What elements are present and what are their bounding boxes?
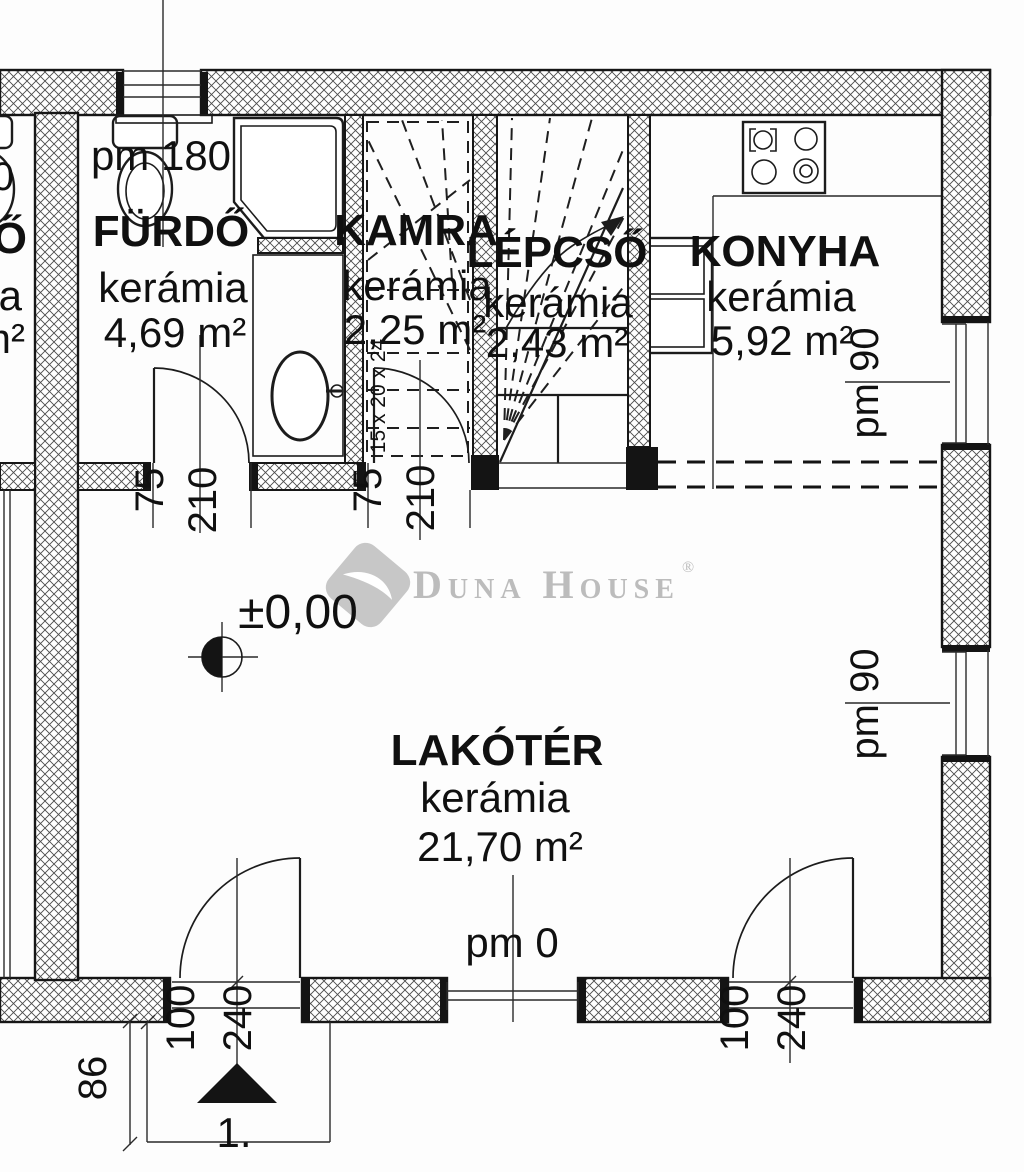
room-label-lakoter-area: 21,70 m²	[417, 823, 583, 870]
dim-kamra-door-height: 210	[399, 465, 443, 532]
room-label-lakoter-name: LAKÓTÉR	[391, 725, 604, 775]
adjacent-room-fragment-top: 0	[0, 155, 14, 199]
stair-formula-label: 15 x 20 x 24	[367, 338, 390, 453]
window-parapet-label-pm180: pm 180	[91, 132, 231, 179]
kitchen-window	[942, 322, 988, 445]
washbasin-icon	[253, 255, 343, 456]
dim-entry-left-width: 100	[159, 985, 203, 1052]
duna-house-logo: Duna House ®	[320, 537, 694, 633]
room-label-lepcso-name: LÉPCSŐ	[467, 227, 648, 277]
gallery-edge-dashed	[658, 462, 942, 487]
duna-house-logo-text: Duna House	[413, 562, 680, 607]
stove-icon	[743, 122, 825, 193]
window-parapet-label-pm0: pm 0	[465, 919, 558, 966]
entrance-marker-icon	[197, 1063, 277, 1103]
window-parapet-label-pm90-lower: pm 90	[843, 648, 887, 759]
dim-kamra-door-width: 75	[346, 468, 390, 513]
room-label-konyha-material: kerámia	[706, 273, 856, 320]
bathroom-door	[154, 368, 249, 463]
room-label-furdo-area: 4,69 m²	[104, 309, 246, 356]
room-label-konyha-name: KONYHA	[690, 227, 881, 276]
bathroom-window	[116, 71, 212, 123]
floor-plan-svg: Duna House ® pm 180 FÜRDŐ kerámia 4,69 m…	[0, 0, 1024, 1172]
room-label-lakoter-material: kerámia	[420, 774, 570, 821]
stairs-floor-lines	[497, 463, 632, 488]
floor-plan: Duna House ® pm 180 FÜRDŐ kerámia 4,69 m…	[0, 0, 1024, 1172]
dim-entry-left-height: 240	[216, 985, 260, 1052]
dim-entry-right-height: 240	[770, 985, 814, 1052]
shower-halfwall	[258, 238, 343, 253]
adjacent-room-fragment-name: Ő	[0, 213, 27, 263]
adjacent-room-fragment-area: m²	[0, 315, 25, 362]
room-label-furdo-name: FÜRDŐ	[93, 206, 249, 256]
room-label-furdo-material: kerámia	[98, 264, 248, 311]
room-label-kamra-area: 2,25 m²	[344, 306, 486, 353]
adjacent-room-fragment-material: a	[0, 272, 23, 319]
room-label-lepcso-area: 2,43 m²	[486, 319, 628, 366]
registered-mark: ®	[682, 559, 694, 576]
level-marker-label: ±0,00	[238, 586, 358, 639]
shower-icon	[234, 118, 343, 238]
dim-furdo-door-width: 75	[128, 468, 172, 513]
dim-furdo-door-height: 210	[181, 467, 225, 534]
dim-entry-right-width: 100	[713, 985, 757, 1052]
step-dim-line	[123, 1014, 137, 1151]
room-label-konyha-area: 5,92 m²	[711, 317, 853, 364]
entrance-number-label: 1.	[216, 1109, 251, 1156]
adjacent-wall-edge	[4, 490, 10, 978]
dim-step-depth: 86	[71, 1056, 115, 1101]
window-parapet-label-pm90-upper: pm 90	[843, 327, 887, 438]
